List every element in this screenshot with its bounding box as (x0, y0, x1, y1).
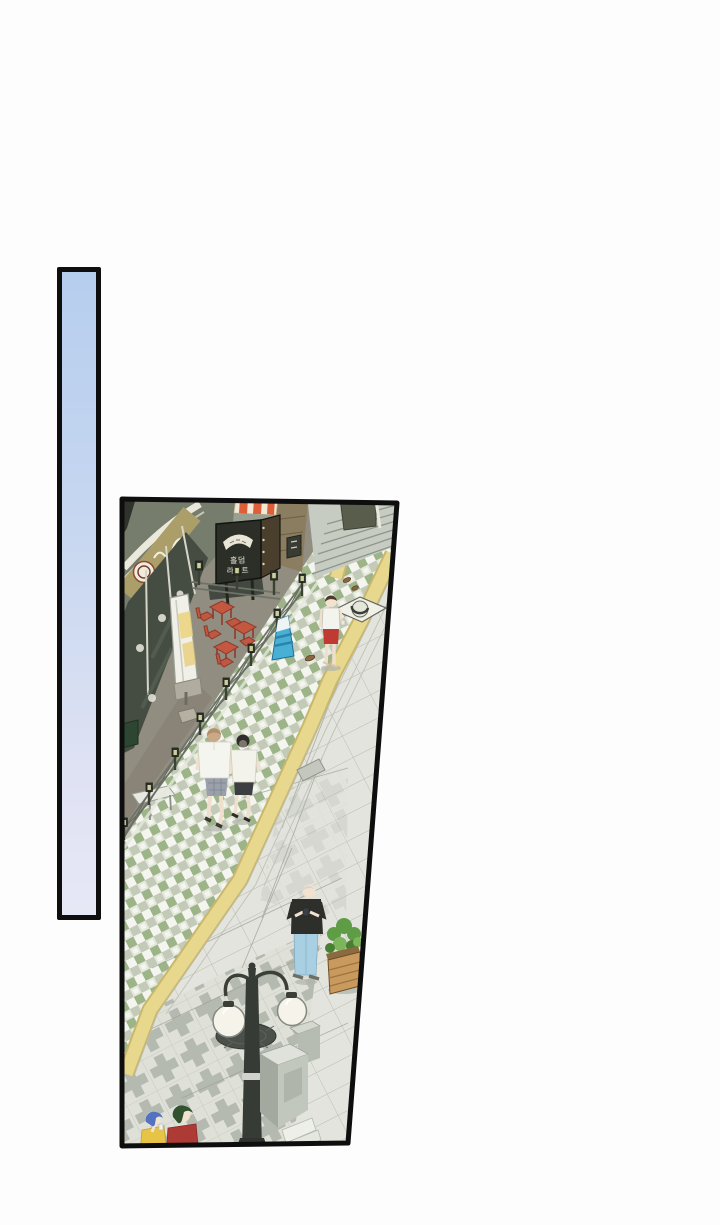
lamp-globe-right (278, 997, 307, 1026)
street-scene-panel: 홀덤 라이트 (0, 0, 720, 1225)
small-banner (287, 535, 301, 558)
webtoon-page: 홀덤 라이트 (0, 0, 720, 1225)
signboard-side (261, 515, 280, 578)
planter (325, 918, 363, 994)
signboard-line1: 홀덤 (230, 555, 246, 566)
lamp-globe-left (213, 1005, 245, 1037)
